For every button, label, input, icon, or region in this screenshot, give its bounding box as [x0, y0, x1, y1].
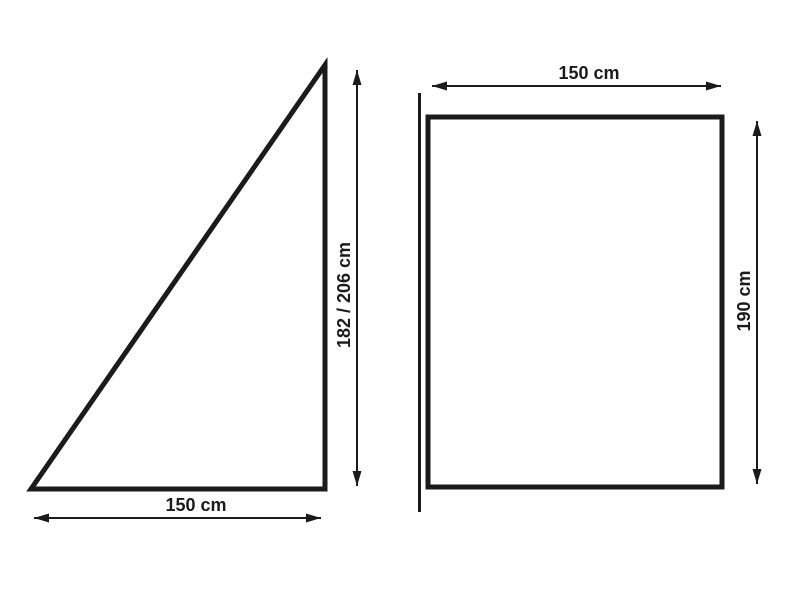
triangle-height-label: 182 / 206 cm [334, 242, 354, 348]
dimension-diagram: 182 / 206 cm 150 cm 150 cm 190 cm [0, 0, 800, 600]
rectangle-figure: 150 cm 190 cm [420, 63, 758, 512]
rectangle-outline [428, 117, 722, 487]
triangle-base-label: 150 cm [165, 495, 226, 515]
rectangle-width-label: 150 cm [558, 63, 619, 83]
triangle-outline [31, 65, 325, 489]
diagram-svg: 182 / 206 cm 150 cm 150 cm 190 cm [0, 0, 800, 600]
triangle-figure: 182 / 206 cm 150 cm [31, 65, 357, 518]
rectangle-height-label: 190 cm [734, 270, 754, 331]
